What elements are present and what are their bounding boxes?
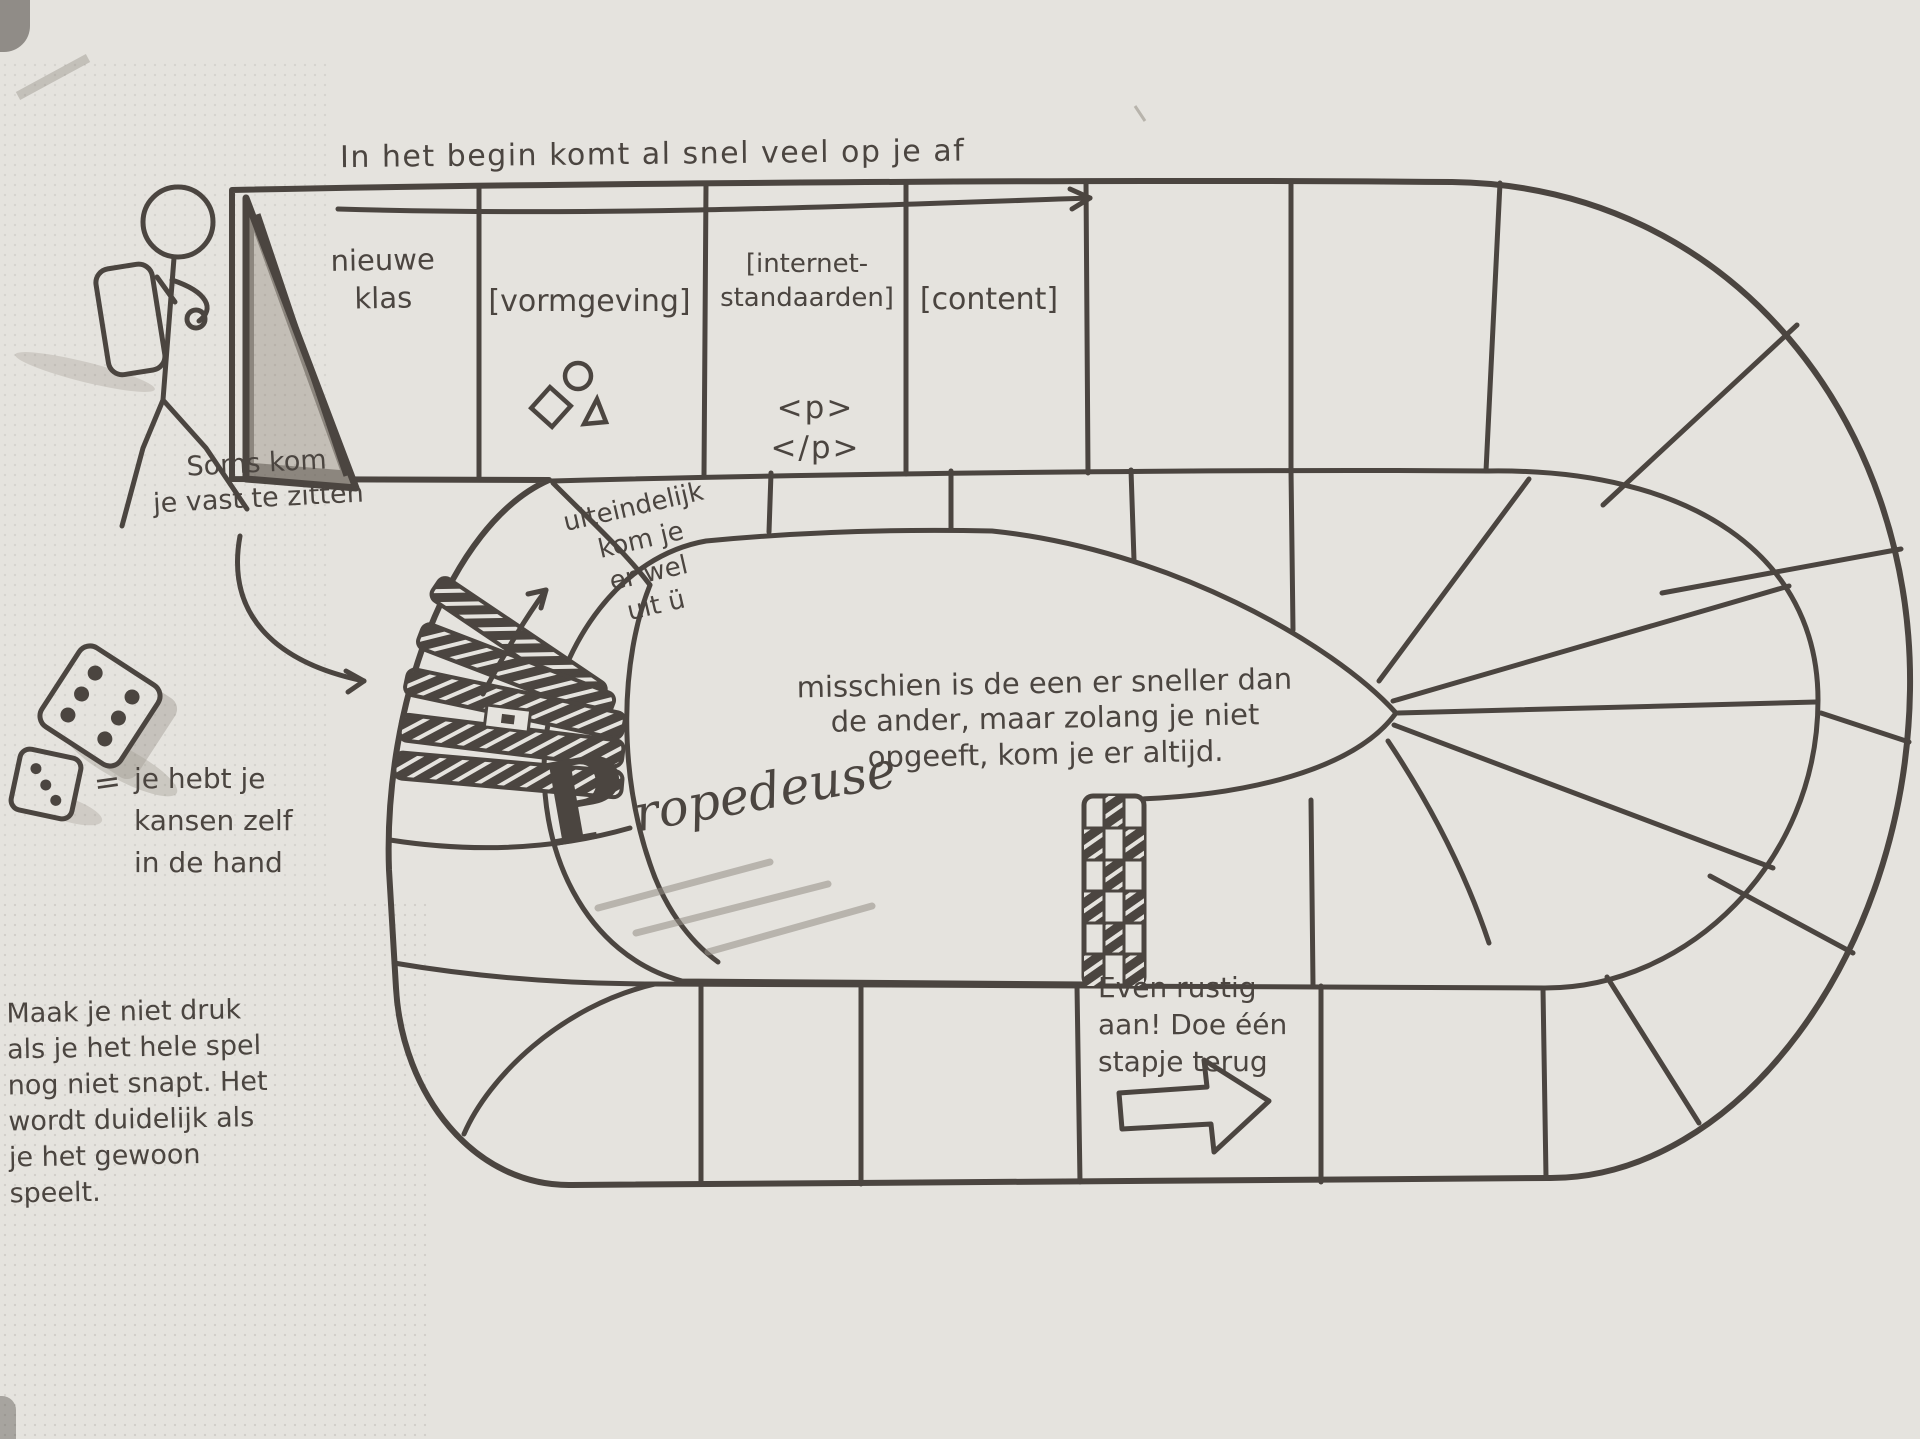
space-label-content: [content] — [903, 280, 1075, 319]
game-board-sketch: In het begin komt al snel veel op je af … — [0, 0, 1920, 1439]
step-back-note: Even rustig aan! Doe één stapje terug — [1098, 970, 1323, 1081]
space-label-nieuwe-klas: nieuwe klas — [315, 241, 450, 319]
head — [143, 187, 213, 257]
diamond-icon — [531, 387, 571, 427]
intro-note: In het begin komt al snel veel op je af — [340, 130, 1120, 177]
space-label-vormgeving: [vormgeving] — [487, 282, 692, 321]
propedeuse-shading — [598, 862, 872, 952]
fan-gate — [484, 705, 530, 732]
space-label-internet-standaarden: [internet- standaarden] — [712, 248, 902, 316]
dice-equals-symbol: = — [91, 760, 123, 805]
dice-note: je hebt je kansen zelf in de hand — [134, 758, 334, 884]
shapes-icons — [531, 363, 606, 427]
die-small-icon — [9, 747, 83, 821]
relax-note: Maak je niet druk als je het hele spel n… — [6, 992, 290, 1212]
intro-arrow — [338, 189, 1090, 212]
triangle-icon — [584, 399, 606, 424]
scan-edge-blob-bottom-left — [0, 1396, 16, 1439]
space-code-p-tags: <p></p> — [733, 388, 898, 469]
circle-icon — [565, 363, 591, 389]
stuck-arrow — [238, 536, 364, 692]
checkered-finish-strip — [1084, 796, 1144, 986]
stuck-note: Soms kom je vast te zitten — [148, 440, 366, 521]
